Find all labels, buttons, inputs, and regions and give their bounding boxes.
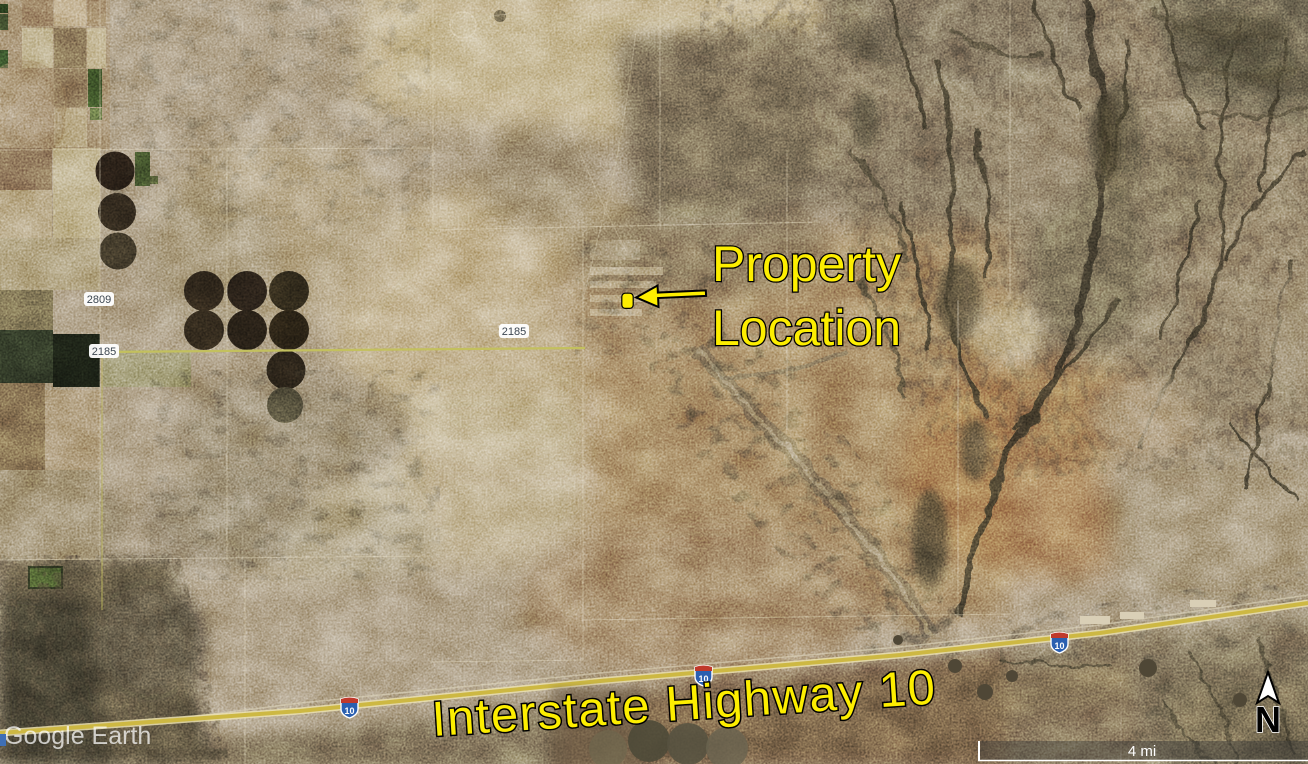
svg-text:2185: 2185 — [92, 346, 116, 358]
svg-text:4 mi: 4 mi — [1128, 743, 1156, 760]
svg-text:10: 10 — [344, 706, 354, 716]
svg-text:N: N — [1255, 699, 1281, 740]
svg-text:2185: 2185 — [502, 326, 526, 338]
svg-text:2809: 2809 — [87, 294, 111, 306]
svg-text:10: 10 — [1054, 641, 1064, 651]
svg-text:Property: Property — [712, 236, 901, 292]
svg-text:Location: Location — [712, 300, 901, 356]
svg-text:Google Earth: Google Earth — [4, 722, 151, 750]
